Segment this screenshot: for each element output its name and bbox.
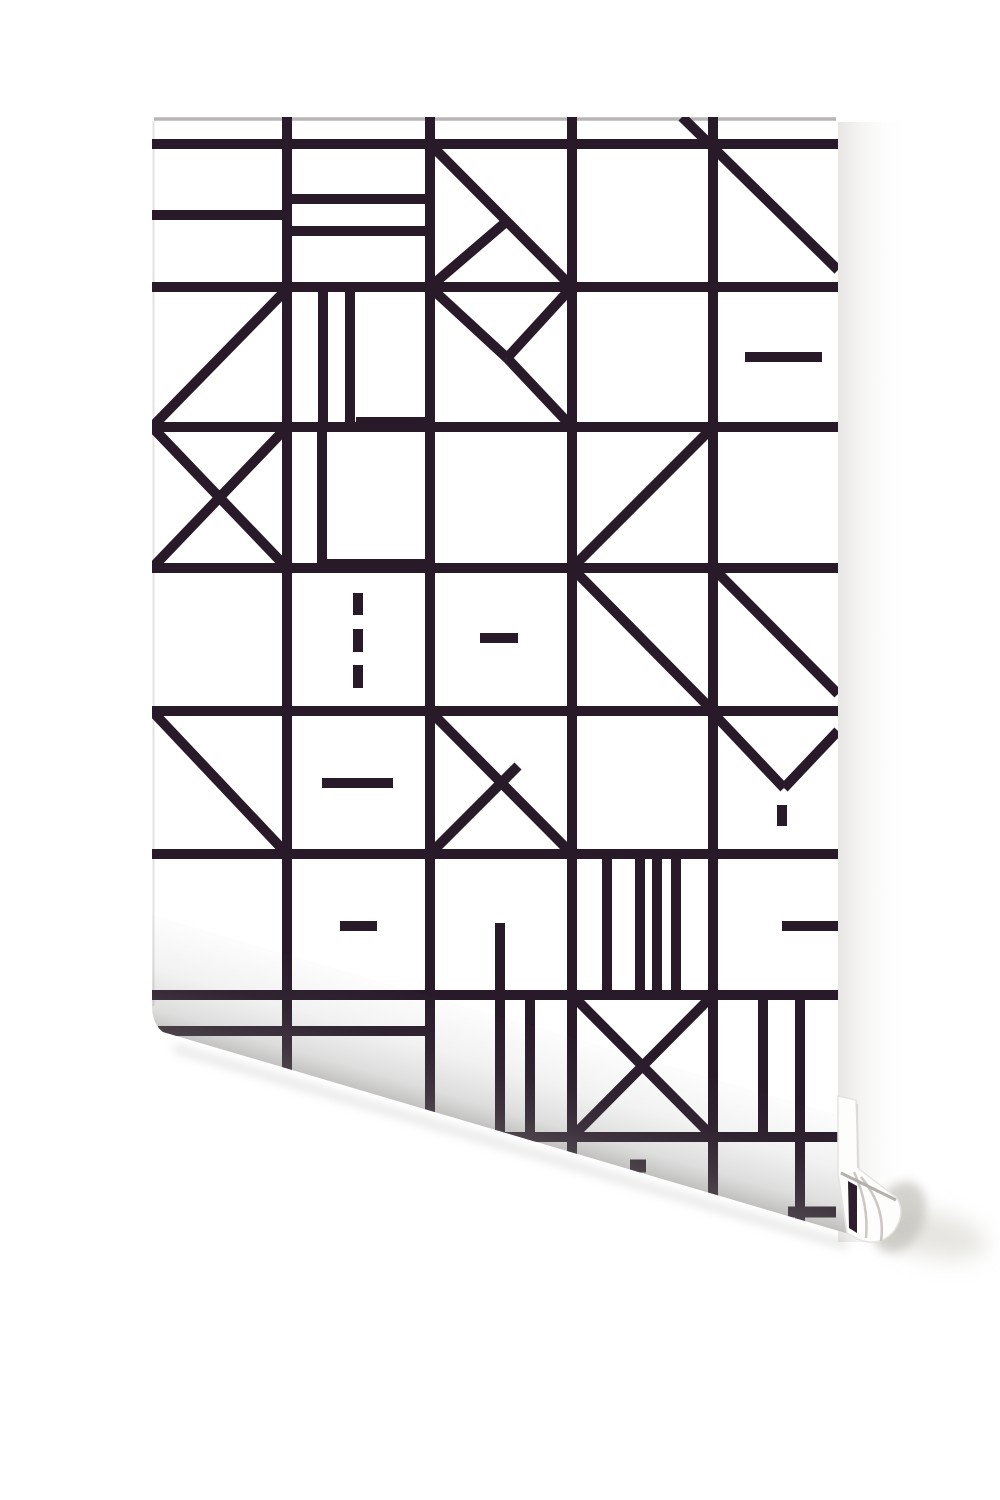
product-photo (0, 0, 1000, 1500)
roll-shade-band (838, 122, 912, 1242)
wallpaper-product-photo (0, 0, 1000, 1500)
